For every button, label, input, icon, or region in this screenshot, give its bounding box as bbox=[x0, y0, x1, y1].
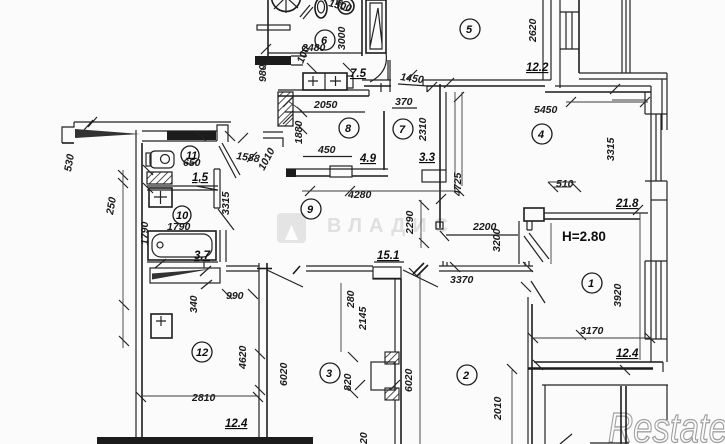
svg-text:2810: 2810 bbox=[191, 392, 216, 404]
svg-text:2310: 2310 bbox=[417, 117, 429, 142]
svg-text:12.4: 12.4 bbox=[225, 418, 248, 430]
svg-text:3315: 3315 bbox=[605, 137, 617, 161]
svg-text:9: 9 bbox=[307, 204, 314, 216]
svg-text:6020: 6020 bbox=[278, 362, 290, 386]
svg-text:4.9: 4.9 bbox=[359, 153, 377, 165]
svg-text:3200: 3200 bbox=[491, 228, 503, 252]
svg-text:12.4: 12.4 bbox=[616, 348, 639, 360]
svg-text:1: 1 bbox=[588, 278, 594, 290]
svg-text:2: 2 bbox=[462, 370, 469, 382]
svg-text:340: 340 bbox=[188, 295, 200, 313]
svg-text:5450: 5450 bbox=[534, 104, 558, 116]
svg-text:370: 370 bbox=[395, 96, 413, 108]
svg-text:20: 20 bbox=[358, 432, 370, 444]
svg-text:3315: 3315 bbox=[220, 191, 232, 215]
svg-text:15.1: 15.1 bbox=[377, 250, 399, 262]
svg-text:3000: 3000 bbox=[336, 26, 348, 50]
svg-text:12.2: 12.2 bbox=[526, 62, 549, 74]
svg-text:H=2.80: H=2.80 bbox=[562, 229, 606, 244]
svg-text:650: 650 bbox=[183, 157, 201, 169]
svg-text:2290: 2290 bbox=[404, 210, 416, 235]
svg-text:1,5: 1,5 bbox=[192, 172, 209, 184]
svg-text:2050: 2050 bbox=[313, 99, 338, 111]
svg-text:4620: 4620 bbox=[237, 345, 249, 370]
svg-text:980: 980 bbox=[257, 64, 269, 82]
svg-text:1790: 1790 bbox=[139, 221, 151, 245]
svg-text:7: 7 bbox=[399, 124, 406, 136]
svg-text:450: 450 bbox=[317, 144, 336, 156]
svg-text:1790: 1790 bbox=[167, 221, 191, 233]
svg-text:510: 510 bbox=[556, 178, 574, 190]
svg-text:2620: 2620 bbox=[527, 18, 539, 43]
svg-text:12: 12 bbox=[196, 347, 208, 359]
svg-text:8: 8 bbox=[345, 123, 352, 135]
svg-text:3,7: 3,7 bbox=[194, 250, 211, 262]
svg-text:3170: 3170 bbox=[580, 325, 604, 337]
svg-text:3: 3 bbox=[326, 368, 332, 380]
svg-text:1880: 1880 bbox=[293, 120, 305, 144]
svg-text:6020: 6020 bbox=[403, 368, 415, 392]
svg-text:3.3: 3.3 bbox=[419, 152, 436, 164]
svg-text:7.5: 7.5 bbox=[350, 68, 367, 80]
svg-text:4: 4 bbox=[537, 129, 544, 141]
svg-text:21.8: 21.8 bbox=[615, 198, 639, 210]
svg-text:280: 280 bbox=[345, 290, 357, 309]
svg-text:3920: 3920 bbox=[612, 283, 624, 307]
svg-text:5: 5 bbox=[466, 24, 473, 36]
svg-text:2145: 2145 bbox=[357, 306, 369, 331]
svg-text:2010: 2010 bbox=[492, 396, 504, 421]
svg-text:3370: 3370 bbox=[450, 274, 474, 286]
